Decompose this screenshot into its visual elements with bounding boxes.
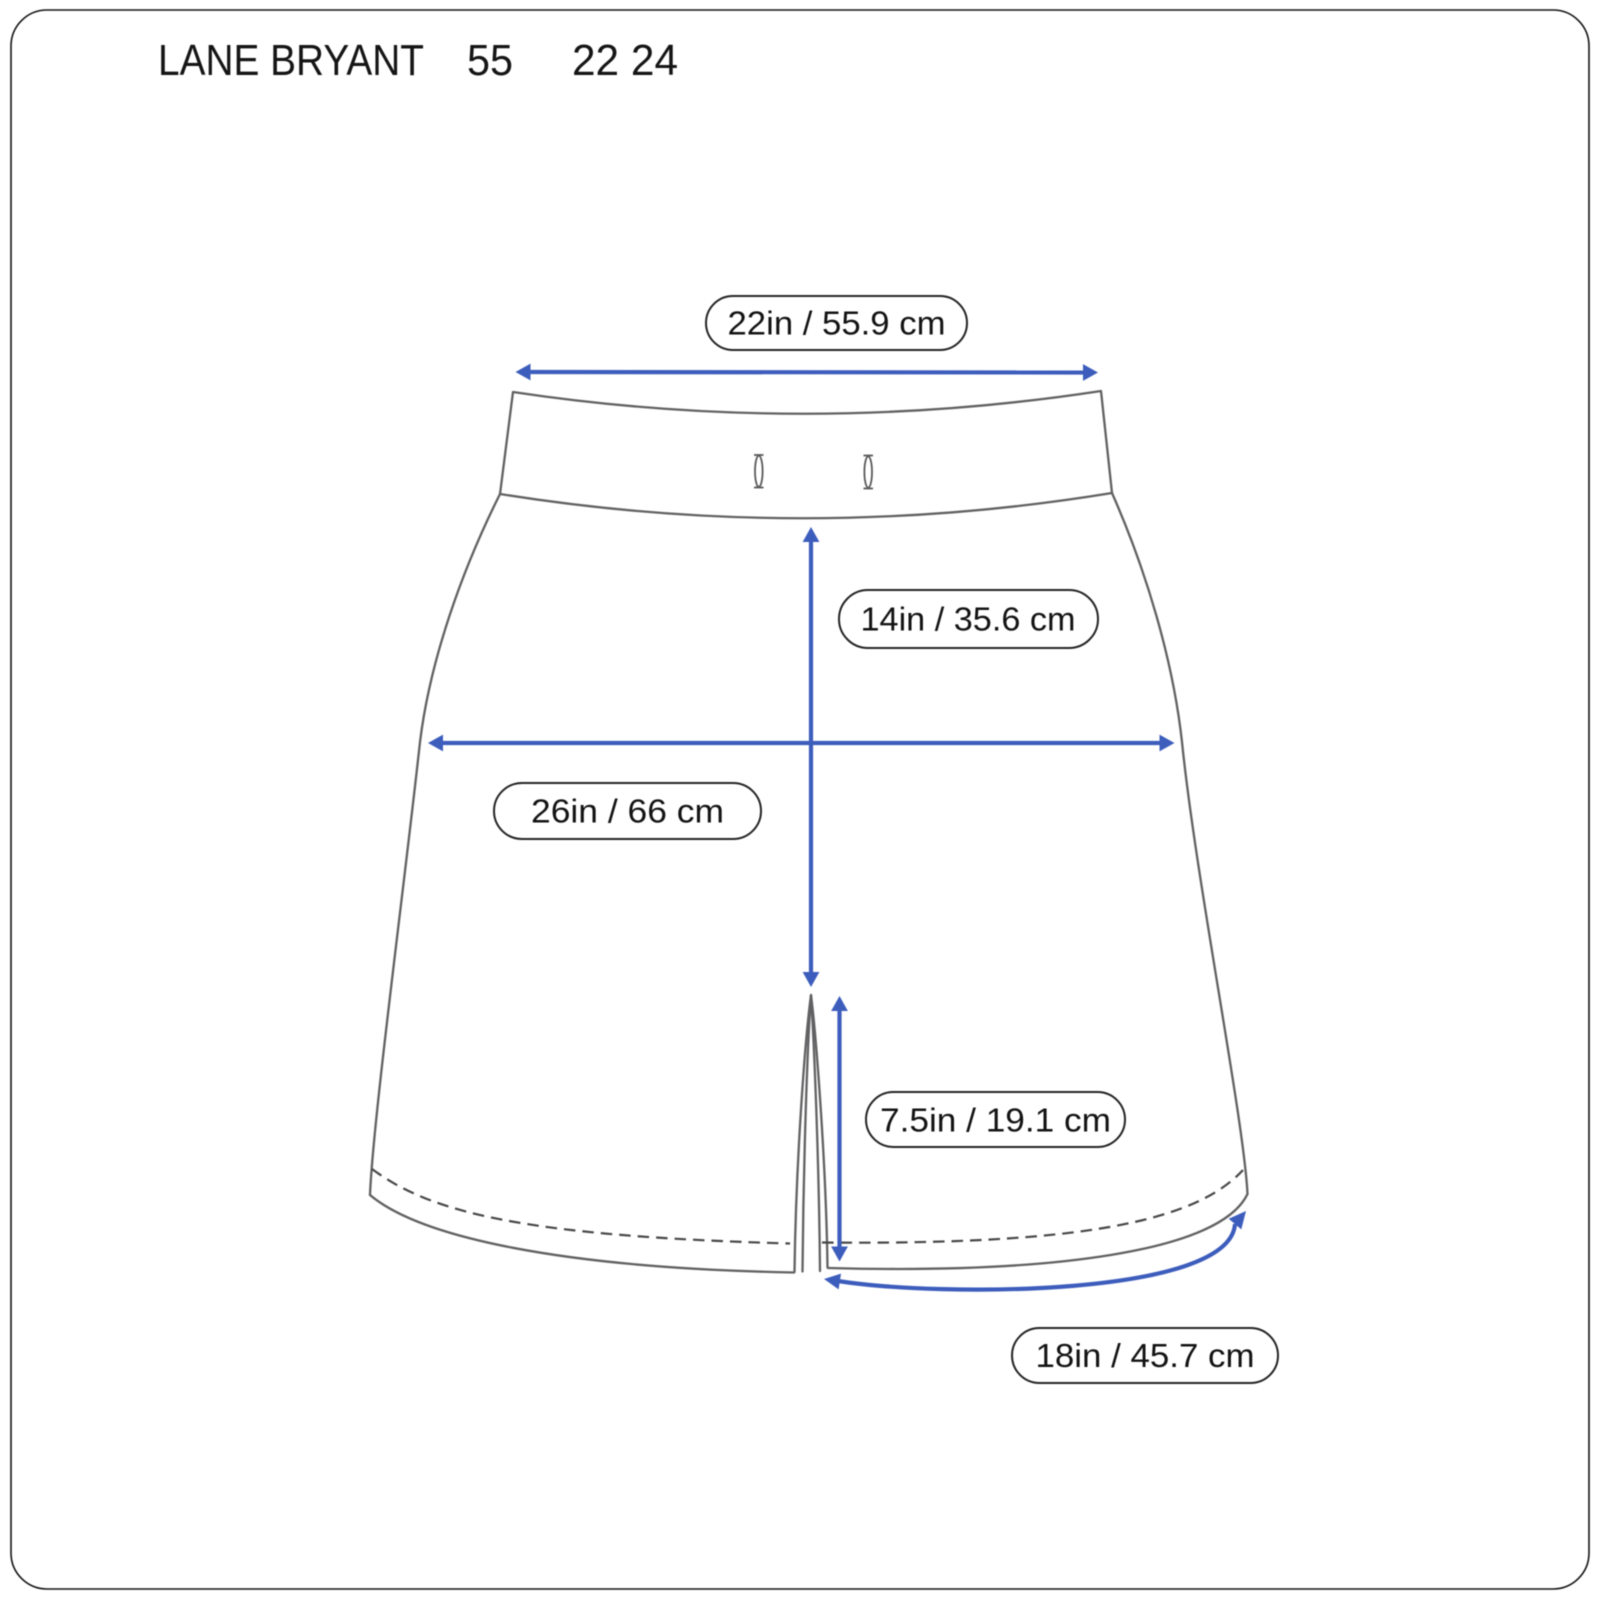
svg-text:7.5in / 19.1 cm: 7.5in / 19.1 cm bbox=[880, 1102, 1111, 1139]
svg-text:18in / 45.7 cm: 18in / 45.7 cm bbox=[1036, 1337, 1255, 1374]
svg-text:14in / 35.6 cm: 14in / 35.6 cm bbox=[861, 601, 1076, 638]
svg-text:LANE BRYANT: LANE BRYANT bbox=[158, 36, 424, 85]
svg-text:22 24: 22 24 bbox=[572, 36, 678, 85]
svg-text:55: 55 bbox=[467, 36, 513, 85]
svg-text:22in / 55.9 cm: 22in / 55.9 cm bbox=[728, 305, 946, 342]
svg-text:26in / 66 cm: 26in / 66 cm bbox=[531, 793, 724, 830]
